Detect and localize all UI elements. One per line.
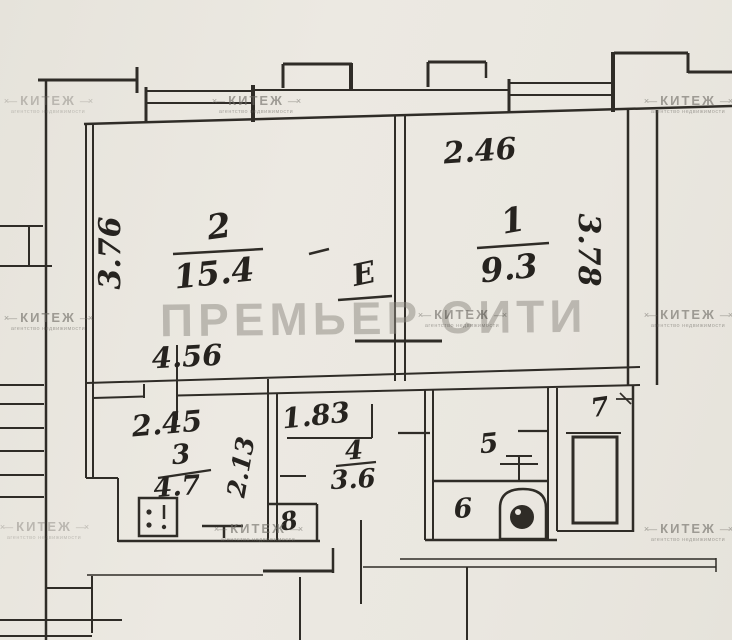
room2-area: 15.4: [172, 252, 255, 293]
left-apartment-wall: [86, 124, 118, 542]
plan-linework: [0, 0, 732, 640]
room3-area: 4.7: [153, 472, 202, 502]
room3-number: 3: [170, 441, 192, 470]
dim-hallway: 1.83: [281, 399, 352, 434]
washbasin-icon: [500, 456, 538, 482]
room4-number: 4: [344, 437, 364, 464]
dim-kitchen-top: 2.45: [131, 406, 204, 441]
dim-room2-left: 3.76: [96, 216, 126, 289]
dim-room2-bottom: 4.56: [151, 341, 223, 374]
outer-bottom-wall: [87, 548, 716, 575]
window-room2: [146, 85, 254, 122]
window-room1: [509, 52, 614, 113]
room6-number: 6: [453, 495, 474, 523]
staircase: [0, 80, 122, 640]
lines-below-apartment: [300, 567, 467, 640]
room5-number: 5: [478, 430, 500, 459]
dim-room1-right: 3.78: [573, 213, 603, 286]
room4-area: 3.6: [330, 466, 377, 494]
room7-number: 7: [589, 394, 611, 422]
room2-number: 2: [205, 209, 233, 246]
dim-room1-top: 2.46: [443, 134, 518, 169]
room1-area: 9.3: [479, 249, 540, 288]
floor-plan-scan: 2 15.4 1 9.3 2.46 3.76 3.78 4.56 2.45 1.…: [0, 0, 732, 640]
closet-7-rect: [573, 437, 617, 523]
right-apartment-wall: [616, 110, 657, 532]
kitchen-sink-icon: [202, 526, 243, 538]
toilet-icon: [500, 489, 546, 539]
